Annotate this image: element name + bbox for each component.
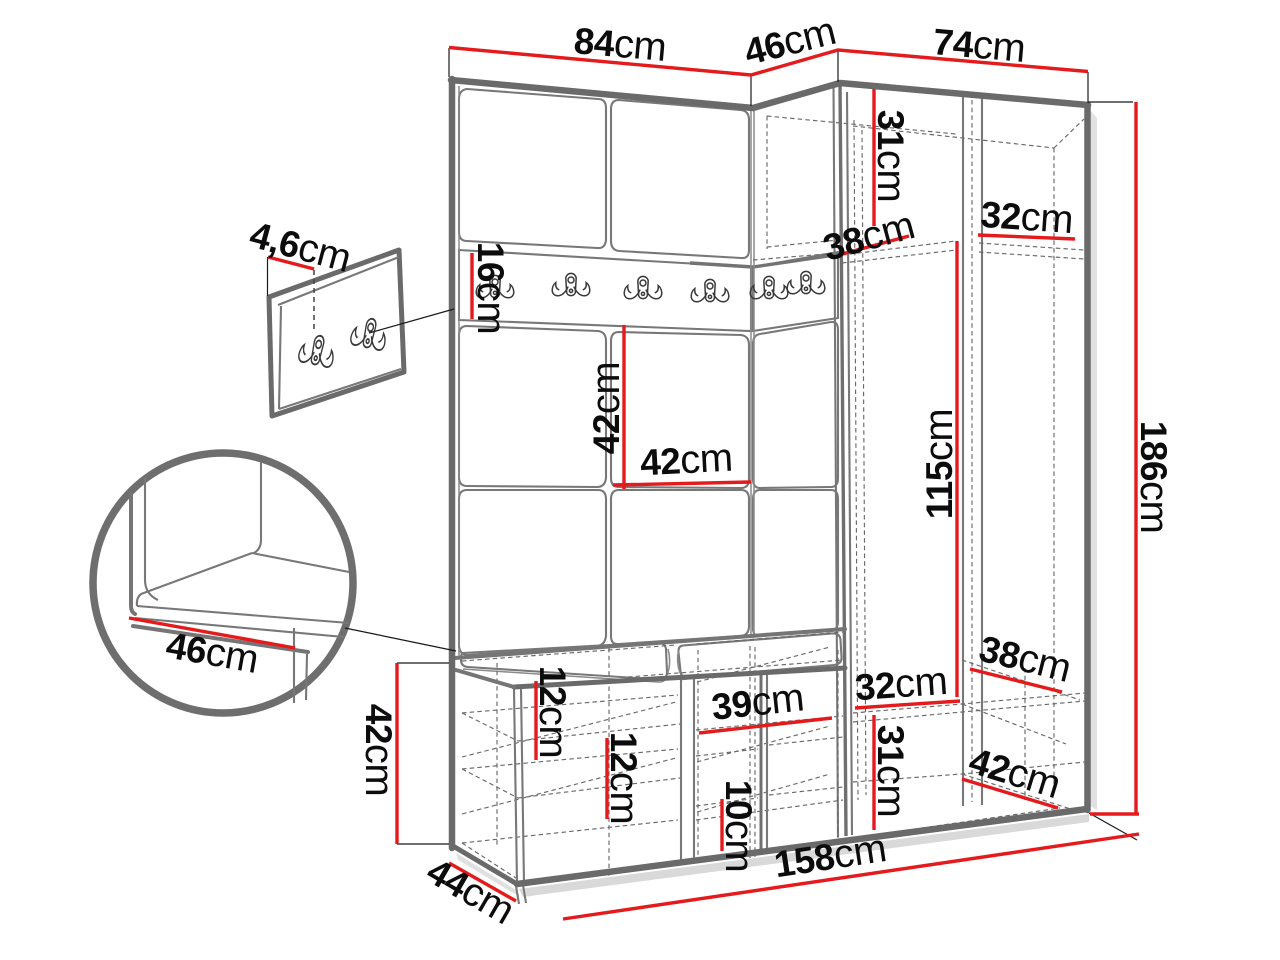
svg-text:42cm: 42cm [357, 704, 401, 796]
svg-text:32cm: 32cm [853, 659, 948, 709]
svg-text:16cm: 16cm [469, 242, 513, 334]
svg-text:12cm: 12cm [531, 666, 575, 758]
svg-text:42cm: 42cm [639, 436, 734, 485]
svg-text:186cm: 186cm [1132, 421, 1176, 534]
svg-text:115cm: 115cm [917, 409, 961, 520]
svg-text:12cm: 12cm [602, 732, 646, 824]
svg-text:32cm: 32cm [979, 192, 1074, 242]
svg-text:31cm: 31cm [869, 725, 913, 817]
svg-text:31cm: 31cm [869, 110, 913, 202]
svg-text:10cm: 10cm [717, 780, 761, 872]
svg-text:42cm: 42cm [584, 362, 628, 454]
